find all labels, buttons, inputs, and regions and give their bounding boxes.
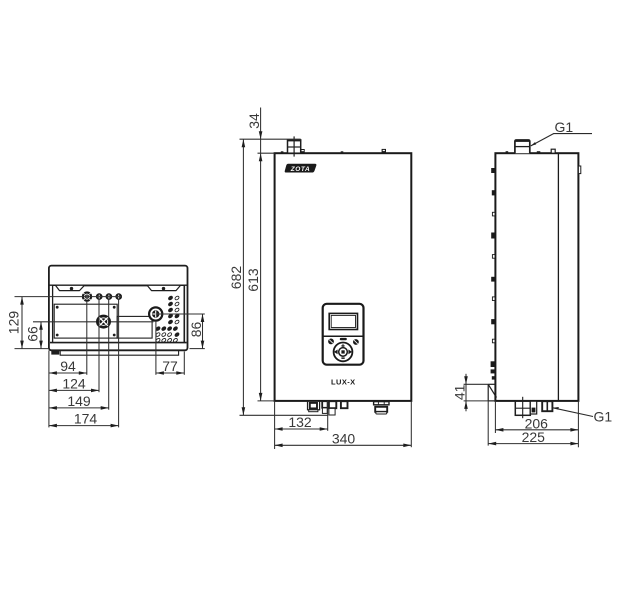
svg-text:149: 149	[67, 393, 91, 409]
svg-text:G1: G1	[594, 408, 613, 424]
svg-text:225: 225	[522, 429, 546, 445]
svg-text:94: 94	[60, 358, 76, 374]
svg-text:132: 132	[288, 414, 312, 430]
svg-text:613: 613	[245, 268, 261, 292]
svg-text:124: 124	[62, 375, 86, 391]
svg-text:LUX-X: LUX-X	[331, 378, 356, 387]
svg-text:G1: G1	[555, 119, 574, 135]
svg-text:174: 174	[74, 411, 98, 427]
svg-text:86: 86	[188, 322, 204, 338]
svg-text:340: 340	[332, 430, 356, 446]
svg-text:ZOTA: ZOTA	[290, 166, 311, 173]
svg-text:77: 77	[162, 358, 178, 374]
svg-text:66: 66	[25, 326, 41, 342]
svg-text:34: 34	[246, 113, 262, 129]
svg-text:129: 129	[6, 311, 22, 335]
svg-text:682: 682	[228, 266, 244, 290]
svg-text:41: 41	[451, 384, 467, 400]
